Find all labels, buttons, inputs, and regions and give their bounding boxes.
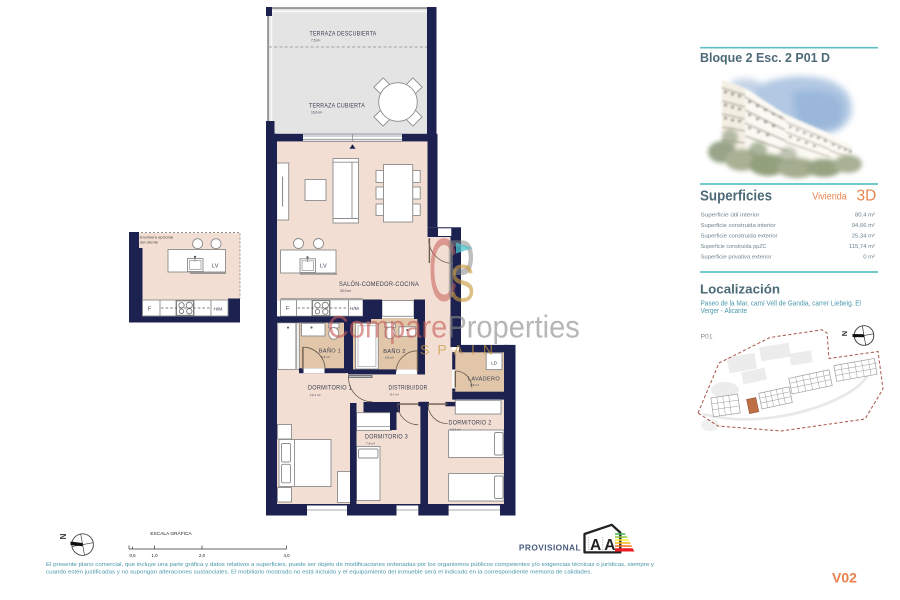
svg-text:CompareProperties: CompareProperties	[328, 309, 580, 345]
svg-text:LAVADERO: LAVADERO	[468, 377, 500, 383]
svg-text:P01: P01	[701, 334, 713, 341]
svg-text:SPAIN: SPAIN	[420, 342, 501, 358]
svg-text:33,9 m²: 33,9 m²	[340, 289, 352, 293]
svg-text:LD: LD	[491, 361, 498, 366]
svg-text:Bloque 2 Esc. 2 P01 D: Bloque 2 Esc. 2 P01 D	[700, 50, 830, 65]
svg-text:7,8 m²: 7,8 m²	[366, 442, 375, 446]
svg-text:Superficie construida interior: Superficie construida interior	[701, 223, 776, 229]
svg-text:El presente plano comercial, q: El presente plano comercial, que incluye…	[46, 562, 654, 568]
svg-text:Localización: Localización	[700, 282, 780, 297]
svg-text:Paseo de la Mar, camí Vell de: Paseo de la Mar, camí Vell de Gandia, ca…	[701, 300, 862, 307]
svg-text:cuando estén justificadas y no: cuando estén justificadas y no supongan …	[46, 570, 592, 576]
svg-text:F: F	[286, 306, 290, 312]
svg-text:3D: 3D	[857, 188, 877, 205]
svg-text:25,34 m²: 25,34 m²	[852, 234, 875, 240]
svg-text:TERRAZA CUBIERTA: TERRAZA CUBIERTA	[309, 103, 365, 110]
svg-text:2,8 m²: 2,8 m²	[470, 383, 479, 387]
svg-text:12,1 m²: 12,1 m²	[310, 393, 321, 397]
svg-text:7,5 m²: 7,5 m²	[311, 39, 321, 43]
svg-text:Superficie construida exterior: Superficie construida exterior	[701, 234, 778, 240]
svg-text:4,0: 4,0	[283, 553, 290, 558]
svg-text:0,5: 0,5	[129, 553, 136, 558]
svg-text:del cliente: del cliente	[140, 240, 159, 245]
svg-text:ESCALA GRÁFICA: ESCALA GRÁFICA	[150, 530, 192, 537]
svg-text:Superficie construida ppZC: Superficie construida ppZC	[701, 244, 768, 250]
svg-text:SALÓN-COMEDOR-COCINA: SALÓN-COMEDOR-COCINA	[339, 281, 420, 288]
svg-text:DORMITORIO 2: DORMITORIO 2	[449, 421, 492, 427]
svg-text:A: A	[590, 537, 601, 554]
svg-text:Superficies: Superficies	[700, 189, 772, 205]
svg-text:BAÑO 2: BAÑO 2	[383, 348, 406, 355]
svg-text:S: S	[450, 253, 475, 313]
svg-text:Verger - Alicante: Verger - Alicante	[701, 308, 748, 315]
svg-text:N: N	[59, 533, 68, 539]
svg-text:DORMITORIO 1: DORMITORIO 1	[308, 386, 352, 392]
svg-text:80,4 m²: 80,4 m²	[855, 212, 875, 218]
svg-text:Vivienda: Vivienda	[812, 190, 847, 202]
svg-text:1,0: 1,0	[151, 553, 158, 558]
svg-text:DISTRIBUIDOR: DISTRIBUIDOR	[389, 386, 428, 392]
svg-text:10,4 m²: 10,4 m²	[450, 428, 461, 432]
svg-text:BAÑO 1: BAÑO 1	[319, 348, 342, 355]
svg-text:N: N	[840, 331, 849, 336]
svg-text:DORMITORIO 3: DORMITORIO 3	[365, 435, 408, 441]
svg-text:Superficie útil interior: Superficie útil interior	[701, 212, 760, 218]
svg-text:2,0: 2,0	[199, 553, 206, 558]
svg-text:V02: V02	[832, 570, 857, 586]
svg-text:TERRAZA DESCUBIERTA: TERRAZA DESCUBIERTA	[310, 31, 377, 38]
svg-text:F: F	[148, 307, 152, 313]
svg-text:LV: LV	[212, 264, 219, 270]
svg-text:H/M: H/M	[214, 307, 223, 313]
svg-text:PROVISIONAL: PROVISIONAL	[519, 543, 581, 553]
svg-text:Superficie privativa exterior: Superficie privativa exterior	[701, 255, 772, 261]
svg-text:A: A	[604, 537, 615, 554]
svg-text:16,6 m²: 16,6 m²	[311, 111, 323, 115]
svg-text:LV: LV	[320, 264, 327, 270]
svg-text:5,8 m²: 5,8 m²	[385, 356, 394, 360]
svg-text:94,66 m²: 94,66 m²	[852, 223, 875, 229]
svg-text:115,74 m²: 115,74 m²	[849, 244, 875, 250]
svg-text:8,7 m²: 8,7 m²	[390, 393, 399, 397]
svg-text:5,9 m²: 5,9 m²	[321, 355, 330, 359]
svg-text:0 m²: 0 m²	[863, 255, 875, 261]
